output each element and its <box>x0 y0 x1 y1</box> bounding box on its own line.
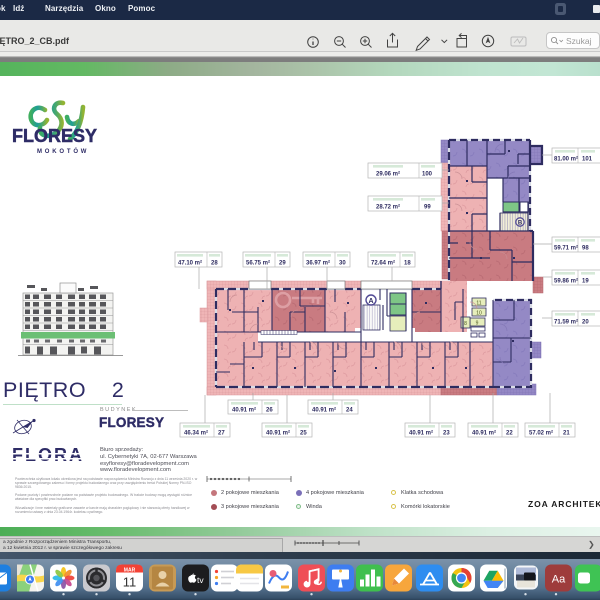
svg-text:B: B <box>518 221 523 227</box>
svg-text:20: 20 <box>582 320 589 326</box>
svg-text:9: 9 <box>476 321 479 327</box>
svg-text:59.86 m²: 59.86 m² <box>554 278 578 285</box>
svg-text:40.91 m²: 40.91 m² <box>409 430 433 437</box>
svg-text:47.10 m²: 47.10 m² <box>178 260 202 267</box>
svg-text:tv: tv <box>197 575 204 585</box>
svg-text:71.59 m²: 71.59 m² <box>554 319 578 326</box>
svg-text:101: 101 <box>582 157 593 163</box>
svg-text:56.75 m²: 56.75 m² <box>246 260 270 267</box>
svg-text:8: 8 <box>464 321 467 327</box>
svg-text:36.97 m²: 36.97 m² <box>306 260 330 267</box>
svg-text:24: 24 <box>346 408 353 414</box>
svg-text:10: 10 <box>476 311 482 317</box>
svg-text:11: 11 <box>476 301 481 307</box>
svg-text:57.02 m²: 57.02 m² <box>529 430 553 437</box>
svg-text:25: 25 <box>300 431 307 437</box>
svg-text:98: 98 <box>582 246 589 252</box>
svg-text:28.72 m²: 28.72 m² <box>376 204 400 211</box>
svg-text:28: 28 <box>211 261 218 267</box>
svg-text:29: 29 <box>279 261 286 267</box>
svg-text:99: 99 <box>424 205 431 211</box>
svg-text:Aa: Aa <box>552 574 566 586</box>
svg-text:59.71 m²: 59.71 m² <box>554 245 578 252</box>
svg-text:46.34 m²: 46.34 m² <box>184 430 208 437</box>
svg-text:Szukaj: Szukaj <box>566 36 592 46</box>
svg-text:A: A <box>368 298 373 305</box>
svg-text:11: 11 <box>123 575 137 590</box>
svg-text:29.06 m²: 29.06 m² <box>376 171 400 178</box>
svg-text:23: 23 <box>443 431 450 437</box>
svg-text:22: 22 <box>506 431 513 437</box>
svg-text:18: 18 <box>404 261 411 267</box>
svg-text:19: 19 <box>582 279 589 285</box>
svg-text:40.91 m²: 40.91 m² <box>266 430 290 437</box>
svg-text:40.91 m²: 40.91 m² <box>312 407 336 414</box>
svg-text:27: 27 <box>218 431 225 437</box>
svg-text:40.91 m²: 40.91 m² <box>472 430 496 437</box>
svg-text:30: 30 <box>339 261 346 267</box>
svg-text:81.00 m²: 81.00 m² <box>554 156 578 163</box>
svg-text:21: 21 <box>563 431 570 437</box>
svg-text:100: 100 <box>422 172 433 178</box>
svg-text:40.91 m²: 40.91 m² <box>232 407 256 414</box>
svg-text:26: 26 <box>266 408 273 414</box>
svg-text:72.64 m²: 72.64 m² <box>371 260 395 267</box>
svg-text:MAR: MAR <box>124 568 136 574</box>
